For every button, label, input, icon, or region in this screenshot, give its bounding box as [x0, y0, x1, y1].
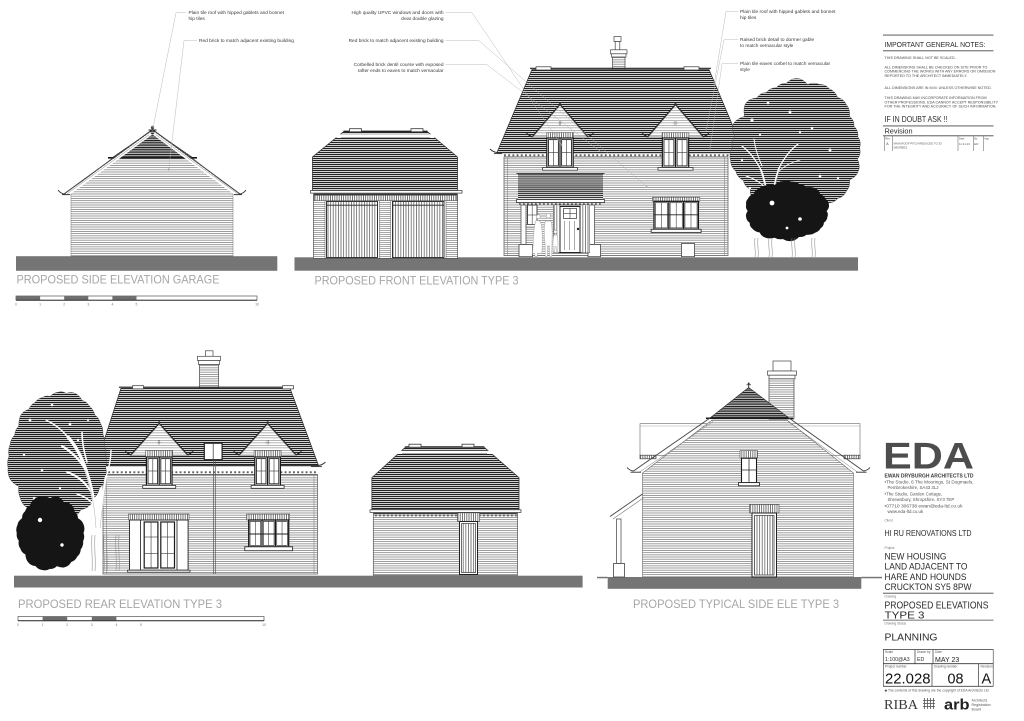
svg-text:PROPOSED REAR ELEVATION TYPE 3: PROPOSED REAR ELEVATION TYPE 3 [18, 598, 222, 611]
svg-text:Shrewsbury, Shropshire, SY3 7E: Shrewsbury, Shropshire, SY3 7EP [888, 497, 955, 502]
svg-text:4: 4 [115, 623, 117, 627]
svg-text:HI RU RENOVATIONS LTD: HI RU RENOVATIONS LTD [885, 528, 972, 538]
svg-text:Plain tile roof with hipped ga: Plain tile roof with hipped gablets and … [740, 9, 836, 15]
svg-text:Revision: Revision [981, 665, 993, 669]
svg-text:PROPOSED FRONT ELEVATION TYPE: PROPOSED FRONT ELEVATION TYPE 3 [315, 274, 519, 287]
svg-text:1: 1 [39, 303, 41, 307]
svg-text:·||·: ·||· [157, 440, 162, 445]
svg-text:Architects: Architects [972, 699, 988, 703]
svg-text:10: 10 [262, 623, 266, 627]
svg-text:Scale: Scale [885, 650, 893, 654]
svg-text:Pembrokeshire, SA43 3LJ: Pembrokeshire, SA43 3LJ [888, 485, 939, 490]
svg-text:•The Studio, Garden Cottage,: •The Studio, Garden Cottage, [885, 492, 943, 497]
svg-text:RIBA: RIBA [884, 697, 918, 712]
svg-text:5: 5 [136, 303, 138, 307]
svg-text:CRUCKTON SY5 8PW: CRUCKTON SY5 8PW [885, 582, 973, 593]
svg-text:11.11.23: 11.11.23 [959, 142, 970, 146]
svg-text:•07710 306738 ewan@eda-ltd.co: •07710 306738 ewan@eda-ltd.co.uk [885, 503, 964, 508]
svg-text:0: 0 [15, 303, 17, 307]
svg-text:www.eda-ltd.co.uk: www.eda-ltd.co.uk [888, 509, 924, 514]
svg-text:Plain tile eaves corbel to mat: Plain tile eaves corbel to match vernacu… [740, 61, 831, 67]
svg-text:REPORTED TO THE ARCHITECT IMME: REPORTED TO THE ARCHITECT IMMEDIATELY. [885, 74, 968, 78]
svg-text:rafter ends to eaves to match: rafter ends to eaves to match vernacular [358, 68, 444, 74]
svg-text:·||·: ·||· [265, 440, 270, 445]
svg-text:THIS DRAWING SHALL NOT BE SCAL: THIS DRAWING SHALL NOT BE SCALED. [885, 56, 956, 60]
svg-text:clear double glazing: clear double glazing [401, 16, 444, 22]
svg-text:Date: Date [935, 650, 942, 654]
svg-text:ALL DIMENSIONS ARE IN M.M. UNL: ALL DIMENSIONS ARE IN M.M. UNLESS OTHERW… [885, 86, 992, 90]
svg-text:·||·: ·||· [673, 121, 678, 126]
svg-text:Project: Project [885, 546, 895, 550]
svg-text:Revision: Revision [885, 127, 913, 136]
svg-text:ED: ED [974, 142, 978, 146]
svg-text:to match vernacular style: to match vernacular style [740, 43, 794, 49]
svg-text:2: 2 [66, 623, 68, 627]
svg-text:High quality UPVC windows and: High quality UPVC windows and doors with [352, 10, 444, 16]
svg-text:10: 10 [255, 303, 259, 307]
svg-text:Red brick to match adjacent ex: Red brick to match adjacent existing bui… [199, 38, 294, 44]
svg-text:Drawing Status: Drawing Status [885, 621, 907, 625]
svg-text:•The Studio, 6 The Moorings, S: •The Studio, 6 The Moorings, St Dogmaels… [885, 480, 974, 485]
svg-text:1: 1 [42, 623, 44, 627]
svg-text:Date: Date [959, 137, 965, 141]
svg-text:arb: arb [944, 697, 970, 714]
svg-text:DEGREES: DEGREES [894, 146, 908, 150]
svg-text:Drawing: Drawing [885, 595, 897, 599]
svg-text:3: 3 [91, 623, 93, 627]
svg-text:hip tiles: hip tiles [189, 16, 206, 22]
svg-text:3: 3 [87, 303, 89, 307]
svg-text:Board: Board [972, 708, 982, 712]
svg-text:A: A [982, 672, 992, 688]
svg-text:08: 08 [948, 672, 964, 688]
svg-text:Rev: Rev [885, 137, 890, 141]
svg-text:PROPOSED TYPICAL SIDE ELE TYPE: PROPOSED TYPICAL SIDE ELE TYPE 3 [633, 598, 839, 611]
svg-text:IMPORTANT GENERAL NOTES:: IMPORTANT GENERAL NOTES: [885, 40, 986, 49]
svg-text:EDA: EDA [883, 436, 974, 477]
svg-text:hip tiles: hip tiles [740, 15, 757, 21]
svg-text:·||·: ·||· [558, 121, 563, 126]
svg-text:2: 2 [63, 303, 65, 307]
svg-text:0: 0 [17, 623, 19, 627]
svg-text:Drawing number: Drawing number [934, 665, 958, 669]
svg-text:IF IN DOUBT ASK !!: IF IN DOUBT ASK !! [885, 114, 948, 124]
svg-text:5: 5 [140, 623, 142, 627]
svg-text:Raised brick detail to dormer: Raised brick detail to dormer gable [740, 37, 814, 43]
svg-text:22.028: 22.028 [885, 672, 931, 688]
svg-text:PROPOSED SIDE ELEVATION GARAGE: PROPOSED SIDE ELEVATION GARAGE [17, 273, 220, 286]
svg-text:◆ The contents of this drawing: ◆ The contents of this drawing are the c… [885, 688, 989, 692]
svg-text:Corbelled brick dentil course: Corbelled brick dentil course with expos… [354, 62, 444, 68]
svg-text:MAY 23: MAY 23 [935, 657, 959, 664]
svg-text:Registration: Registration [972, 703, 991, 707]
svg-text:4: 4 [111, 303, 113, 307]
svg-text:Project number: Project number [885, 665, 908, 669]
svg-text:Plain tile roof with hipped ga: Plain tile roof with hipped gablets and … [189, 10, 285, 16]
svg-text:Client: Client [885, 519, 893, 523]
svg-text:Drawn by: Drawn by [917, 650, 931, 654]
svg-text:1:100@A3: 1:100@A3 [885, 657, 910, 663]
svg-text:PLANNING: PLANNING [885, 632, 938, 643]
svg-text:App: App [984, 137, 989, 141]
svg-text:ED: ED [917, 657, 924, 663]
svg-text:style: style [740, 67, 750, 73]
svg-text:Red brick to match adjacent ex: Red brick to match adjacent existing bui… [349, 38, 444, 44]
svg-text:FOR THE INTEGRITY AND ACCURACY: FOR THE INTEGRITY AND ACCURACY OF SUCH I… [885, 105, 997, 109]
